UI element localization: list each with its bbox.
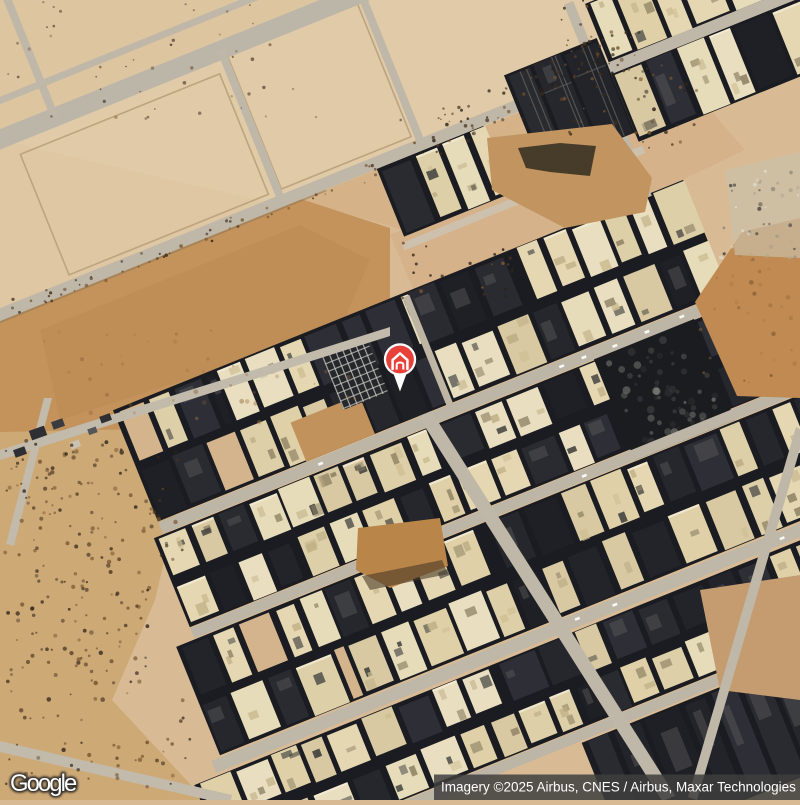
svg-text:Google: Google	[10, 770, 77, 797]
svg-text:Imagery ©2025 Airbus, CNES / A: Imagery ©2025 Airbus, CNES / Airbus, Max…	[441, 780, 796, 795]
